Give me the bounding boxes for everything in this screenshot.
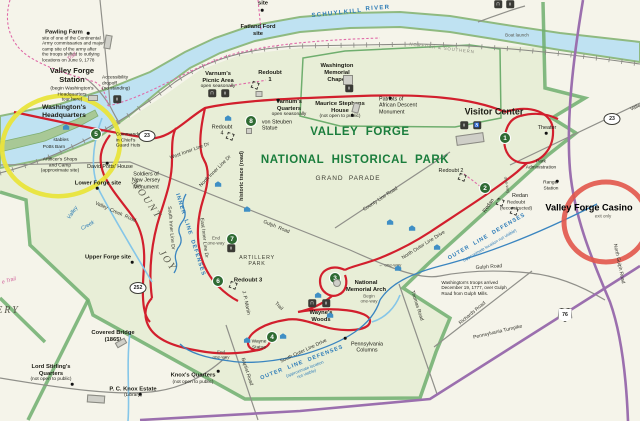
- chapel-parcel-boundary: [300, 45, 501, 127]
- map-canvas[interactable]: siteSCHUYLKILLRIVERFatland Ford sitePawl…: [0, 0, 640, 421]
- map-geometry: [0, 0, 640, 421]
